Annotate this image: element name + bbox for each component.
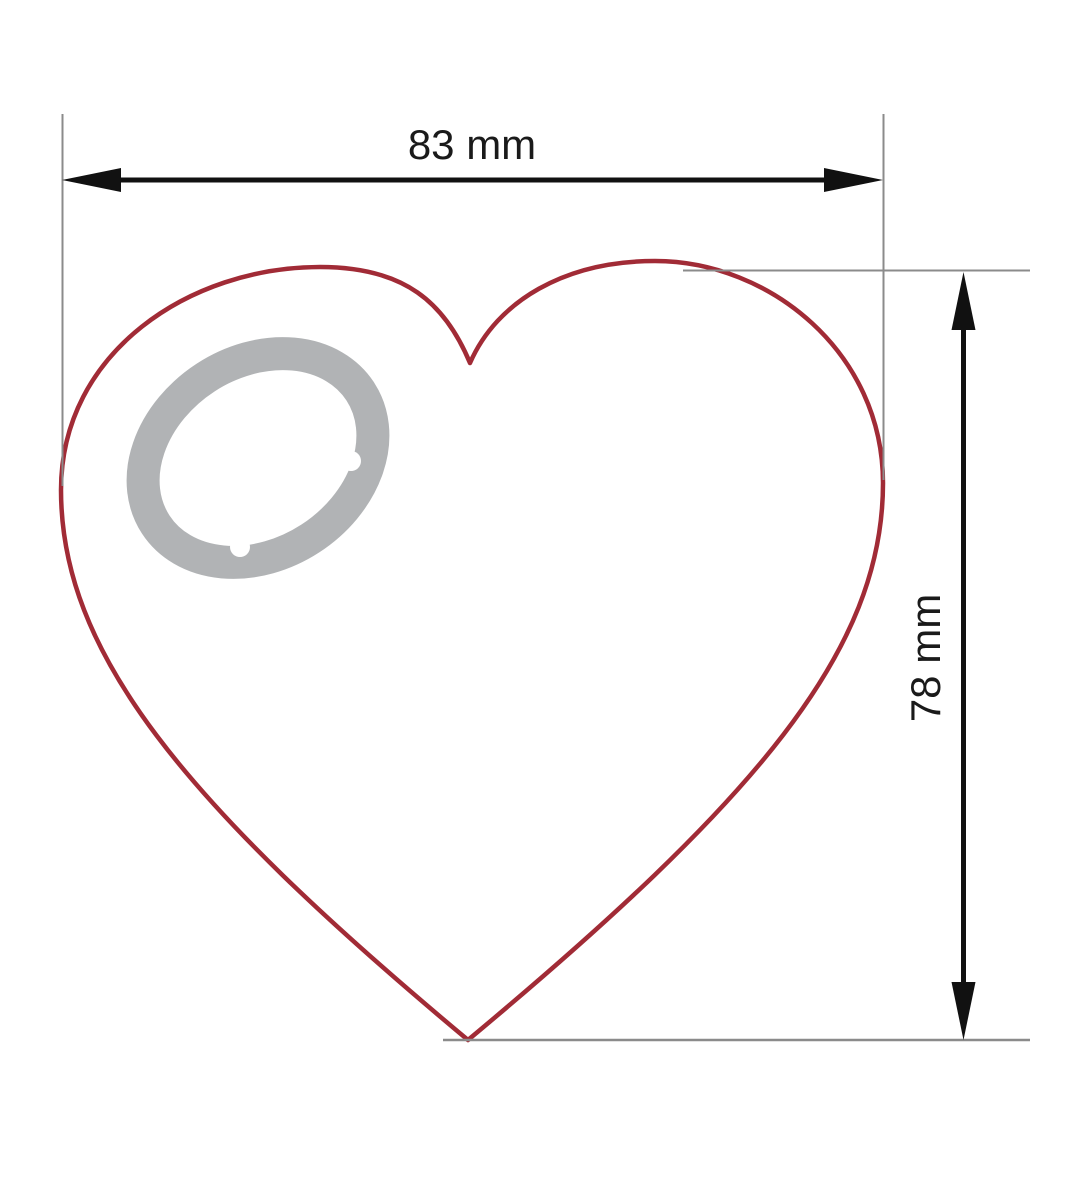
drawing-background (0, 0, 1078, 1179)
technical-drawing: 83 mm 78 mm (0, 0, 1078, 1179)
height-dimension-label: 78 mm (902, 594, 949, 722)
drawing-canvas: 83 mm 78 mm (0, 0, 1078, 1179)
ring-split-notch-right (341, 451, 361, 471)
width-dimension-label: 83 mm (408, 121, 536, 168)
ring-split-notch-bottom (230, 537, 250, 557)
